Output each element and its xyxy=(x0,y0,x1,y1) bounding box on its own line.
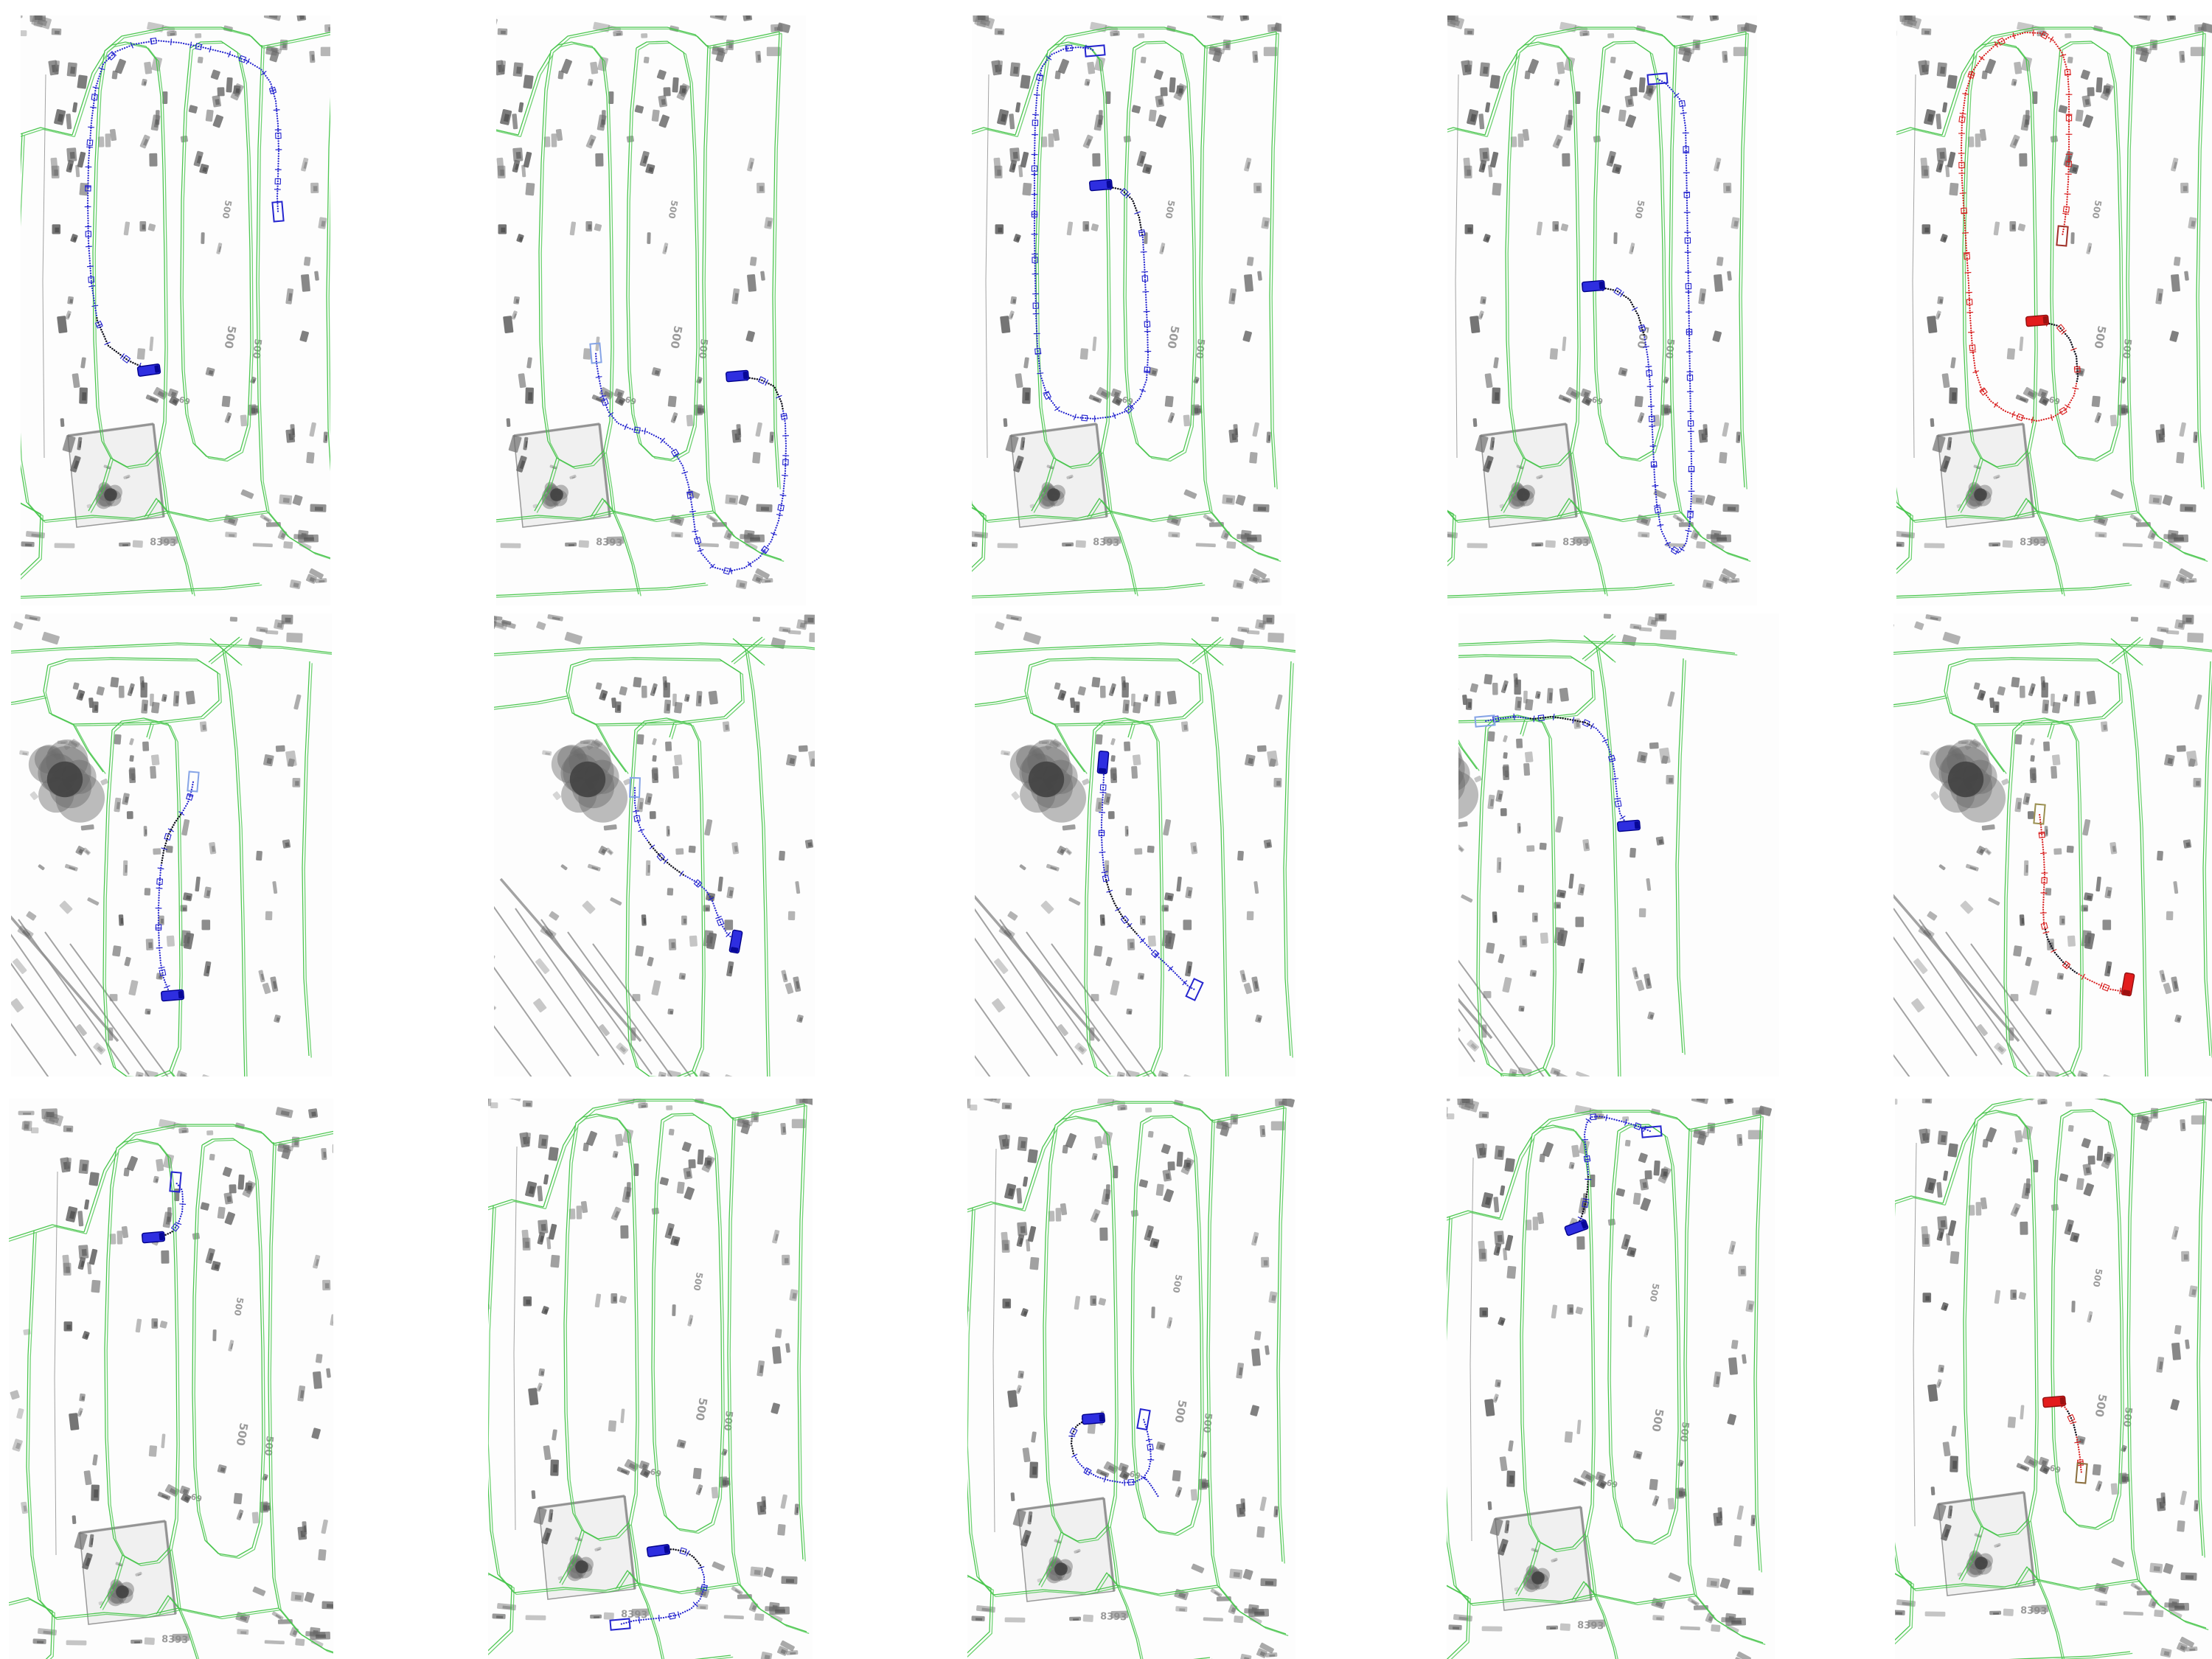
map-glyph-label: 500 xyxy=(693,1397,710,1422)
vehicle-box xyxy=(2042,1396,2065,1408)
trajectory-overlay xyxy=(1068,1409,1158,1497)
map-panel-r2-c1 xyxy=(11,613,332,1077)
trajectory-overlay xyxy=(1582,73,1694,554)
map-glyph-label: 500 xyxy=(1165,324,1182,349)
trajectory-tick xyxy=(1646,366,1652,367)
trajectory-tick xyxy=(1960,113,1966,114)
trajectory-tick xyxy=(1680,113,1687,114)
map-scene: 500500500839369 xyxy=(1895,1099,2212,1659)
trajectory-tick xyxy=(1962,233,1969,234)
trajectory-tick xyxy=(159,967,165,969)
map-panel-r3-c5: 500500500839369 xyxy=(1895,1099,2212,1659)
vehicle-box xyxy=(1089,179,1112,191)
map-panel-r3-c2: 500500500839369 xyxy=(488,1099,813,1659)
map-scene xyxy=(11,614,332,1077)
map-panel-svg-r3-c4: 500500500839369 xyxy=(1447,1099,1775,1659)
map-panel-svg-r2-c3 xyxy=(975,613,1295,1077)
trajectory-node-box xyxy=(669,1613,675,1618)
map-panel-svg-r2-c5 xyxy=(1893,613,2212,1077)
map-panel-r2-c2 xyxy=(494,613,815,1077)
map-background: 500500500839369 xyxy=(1896,15,2212,599)
trajectory-tick xyxy=(1124,1480,1125,1486)
map-panel-r3-c1: 500500500839369 xyxy=(9,1099,333,1659)
trajectory-tick xyxy=(1065,45,1066,52)
map-background xyxy=(975,614,1295,1077)
trajectory-tick xyxy=(782,475,788,476)
map-glyph-label: 500 xyxy=(1200,1413,1214,1434)
map-glyph-label: 8393 xyxy=(161,1634,189,1646)
trajectory-node-box xyxy=(1102,875,1109,882)
map-glyph-label: 500 xyxy=(2120,338,2133,360)
map-glyph-label: 500 xyxy=(1677,1422,1691,1443)
vehicle-box xyxy=(726,370,748,382)
trajectory-tick xyxy=(2073,388,2079,389)
map-panel-svg-r2-c1 xyxy=(11,613,332,1077)
map-panel-r1-c3: 500500500839369 xyxy=(972,15,1281,605)
map-background: 500500500839369 xyxy=(496,15,790,599)
map-glyph-label: 500 xyxy=(234,1422,251,1447)
map-scene xyxy=(1893,614,2212,1077)
trajectory-tick xyxy=(1514,714,1514,720)
map-scene: 500500500839369 xyxy=(1447,15,1757,599)
map-background: 500500500839369 xyxy=(9,1107,333,1659)
trajectory-node-box xyxy=(239,55,246,62)
vehicle-box xyxy=(142,1231,164,1243)
trajectory-tick xyxy=(88,127,94,128)
map-scene: 500500500839369 xyxy=(1447,1099,1772,1659)
map-panel-r1-c2: 500500500839369 xyxy=(496,15,806,605)
map-panel-r2-c4 xyxy=(1458,613,1779,1077)
trajectory-tick xyxy=(780,495,787,495)
trajectory-tick xyxy=(1034,94,1040,95)
trajectory-node-box xyxy=(2041,923,2048,930)
trajectory-tick xyxy=(776,395,782,398)
map-panel-svg-r1-c1: 500500500839369 xyxy=(21,15,330,605)
map-glyph-label: 500 xyxy=(1171,1273,1184,1293)
map-glyph-label: 8393 xyxy=(150,537,177,549)
map-glyph-label: 500 xyxy=(668,324,685,349)
trajectory-tick xyxy=(1968,332,1975,333)
map-glyph-label: 500 xyxy=(1193,338,1206,360)
trajectory-tick xyxy=(1554,714,1554,720)
map-glyph-label: 500 xyxy=(1663,338,1676,360)
map-glyph-label: 500 xyxy=(262,1436,275,1457)
trajectory-tick xyxy=(1960,193,1966,194)
vehicle-box xyxy=(161,990,184,1001)
trajectory-tick xyxy=(87,266,94,267)
map-panel-svg-r1-c4: 500500500839369 xyxy=(1447,15,1757,605)
trajectory-overlay xyxy=(1032,45,1152,422)
map-glyph-label: 500 xyxy=(220,199,234,219)
trajectory-tick xyxy=(2120,988,2121,995)
vehicle-box xyxy=(1082,1413,1105,1425)
trajectory-tick xyxy=(91,305,98,306)
map-panel-svg-r1-c5: 500500500839369 xyxy=(1896,15,2212,605)
trajectory-node-box xyxy=(695,538,701,544)
map-background xyxy=(1458,613,1737,1077)
trajectory-tick xyxy=(156,888,163,888)
vehicle-box xyxy=(729,930,742,953)
map-panel-svg-r3-c3: 500500500839369 xyxy=(967,1099,1295,1659)
map-panel-r3-c3: 500500500839369 xyxy=(967,1099,1295,1659)
trajectory-tick xyxy=(156,947,163,948)
map-panel-svg-r3-c1: 500500500839369 xyxy=(9,1099,333,1659)
map-panel-svg-r2-c4 xyxy=(1458,613,1779,1077)
trajectory-tick xyxy=(1071,1454,1077,1457)
vehicle-box xyxy=(1097,751,1109,773)
map-scene: 500500500839369 xyxy=(967,1099,1295,1659)
vehicle-box xyxy=(2121,973,2135,996)
map-glyph-label: 8393 xyxy=(2020,1605,2048,1617)
map-glyph-label: 500 xyxy=(721,1411,734,1432)
map-glyph-label: 500 xyxy=(250,338,263,360)
map-glyph-label: 500 xyxy=(1633,199,1646,219)
map-glyph-label: 8393 xyxy=(2020,537,2047,549)
map-scene: 500500500839369 xyxy=(488,1099,813,1659)
figure-grid: 500500500839369 500500500839369500500500… xyxy=(0,0,2212,1659)
trajectory-overlay xyxy=(156,771,199,1001)
map-glyph-label: 500 xyxy=(667,199,680,219)
map-glyph-label: 500 xyxy=(1648,1282,1661,1302)
map-glyph-label: 8393 xyxy=(1577,1620,1604,1632)
goal-box xyxy=(610,1618,630,1630)
trajectory-tick xyxy=(1099,852,1106,853)
map-background: 500500500839369 xyxy=(967,1099,1295,1659)
trajectory-tick xyxy=(86,147,93,147)
vehicle-box xyxy=(1617,820,1640,832)
map-glyph-label: 8393 xyxy=(1562,537,1590,549)
trajectory-node-box xyxy=(1583,720,1590,727)
trajectory-tick xyxy=(692,531,698,532)
map-glyph-label: 500 xyxy=(1649,1408,1666,1433)
map-background xyxy=(1893,614,2212,1077)
goal-box xyxy=(2056,226,2067,246)
map-glyph-label: 500 xyxy=(2093,1393,2110,1418)
trajectory-tick xyxy=(1962,94,1969,94)
trajectory-tick xyxy=(776,515,783,516)
map-background xyxy=(11,614,332,1077)
trajectory-node-box xyxy=(1672,547,1679,554)
trajectory-tick xyxy=(86,246,92,247)
map-glyph-label: 500 xyxy=(696,338,709,360)
map-background: 500500500839369 xyxy=(21,15,330,599)
trajectory-tick xyxy=(686,1551,689,1557)
trajectory-tick xyxy=(1614,799,1621,799)
trajectory-tick xyxy=(1169,967,1173,971)
map-glyph-label: 8393 xyxy=(1093,537,1120,549)
trajectory-tick xyxy=(2062,213,2069,214)
trajectory-tick xyxy=(1686,530,1692,532)
map-background: 500500500839369 xyxy=(1447,15,1757,599)
map-panel-r1-c1: 500500500839369 xyxy=(21,15,330,605)
map-glyph-label: 500 xyxy=(222,324,239,349)
map-background: 500500500839369 xyxy=(1447,1099,1772,1659)
map-glyph-label: 8393 xyxy=(596,537,623,549)
map-scene: 500500500839369 xyxy=(1896,15,2212,599)
trajectory-tick xyxy=(1620,816,1626,820)
map-glyph-label: 500 xyxy=(232,1296,246,1316)
map-panel-r2-c3 xyxy=(975,613,1295,1077)
trajectory-overlay xyxy=(142,1172,186,1242)
map-scene: 500500500839369 xyxy=(9,1107,333,1659)
map-glyph-label: 500 xyxy=(2121,1407,2134,1428)
trajectory-tick xyxy=(1965,272,1972,273)
map-glyph-label: 500 xyxy=(2091,1267,2104,1287)
trajectory-tick xyxy=(158,868,164,869)
trajectory-tick xyxy=(1632,307,1638,310)
map-glyph-label: 8393 xyxy=(1100,1611,1127,1623)
map-background: 500500500839369 xyxy=(1895,1099,2212,1659)
map-scene: 500500500839369 xyxy=(21,15,330,599)
vehicle-box xyxy=(2025,315,2048,327)
trajectory-tick xyxy=(105,342,111,345)
vehicle-box xyxy=(137,364,161,376)
trajectory-tick xyxy=(90,107,97,108)
vehicle-box xyxy=(1582,280,1604,292)
map-scene: 500500500839369 xyxy=(972,15,1281,599)
map-glyph-label: 500 xyxy=(1164,199,1177,219)
trajectory-tick xyxy=(1146,1439,1152,1441)
goal-box xyxy=(2076,1463,2087,1483)
map-glyph-label: 500 xyxy=(1635,324,1652,349)
trajectory-tick xyxy=(1032,114,1039,115)
map-panel-svg-r2-c2 xyxy=(494,613,815,1077)
map-panel-r1-c5: 500500500839369 xyxy=(1896,15,2212,605)
map-scene: 500500500839369 xyxy=(496,15,790,599)
map-panel-svg-r3-c2: 500500500839369 xyxy=(488,1099,813,1659)
trajectory-tick xyxy=(1534,716,1534,723)
map-glyph-label: 500 xyxy=(2090,199,2104,219)
map-scene xyxy=(975,614,1295,1077)
trajectory-tick xyxy=(274,110,280,111)
map-panel-r2-c5 xyxy=(1893,613,2212,1077)
map-glyph-label: 500 xyxy=(1172,1399,1189,1424)
trajectory-tick xyxy=(1652,486,1659,487)
trajectory-overlay xyxy=(1475,714,1640,832)
map-background: 500500500839369 xyxy=(972,15,1281,599)
map-panel-svg-r1-c3: 500500500839369 xyxy=(972,15,1281,605)
vehicle-box xyxy=(647,1544,670,1557)
trajectory-tick xyxy=(1654,505,1660,507)
map-background: 500500500839369 xyxy=(488,1099,813,1659)
trajectory-tick xyxy=(1658,525,1664,526)
trajectory-tick xyxy=(689,511,696,512)
trajectory-tick xyxy=(179,1204,186,1205)
trajectory-tick xyxy=(596,377,602,378)
trajectory-tick xyxy=(659,1615,660,1621)
map-scene xyxy=(1458,613,1737,1077)
trajectory-tick xyxy=(88,286,95,287)
map-panel-svg-r3-c5: 500500500839369 xyxy=(1895,1099,2212,1659)
trajectory-tick xyxy=(1964,252,1970,253)
trajectory-tick xyxy=(1969,352,1976,352)
map-glyph-label: 500 xyxy=(692,1271,705,1291)
map-panel-svg-r1-c2: 500500500839369 xyxy=(496,15,806,605)
map-panel-r3-c4: 500500500839369 xyxy=(1447,1099,1775,1659)
trajectory-tick xyxy=(2040,853,2047,854)
map-glyph-label: 500 xyxy=(2092,324,2109,349)
map-panel-r1-c4: 500500500839369 xyxy=(1447,15,1757,605)
trajectory-tick xyxy=(644,428,645,434)
trajectory-tick xyxy=(171,39,172,46)
trajectory-tick xyxy=(1068,1436,1075,1437)
